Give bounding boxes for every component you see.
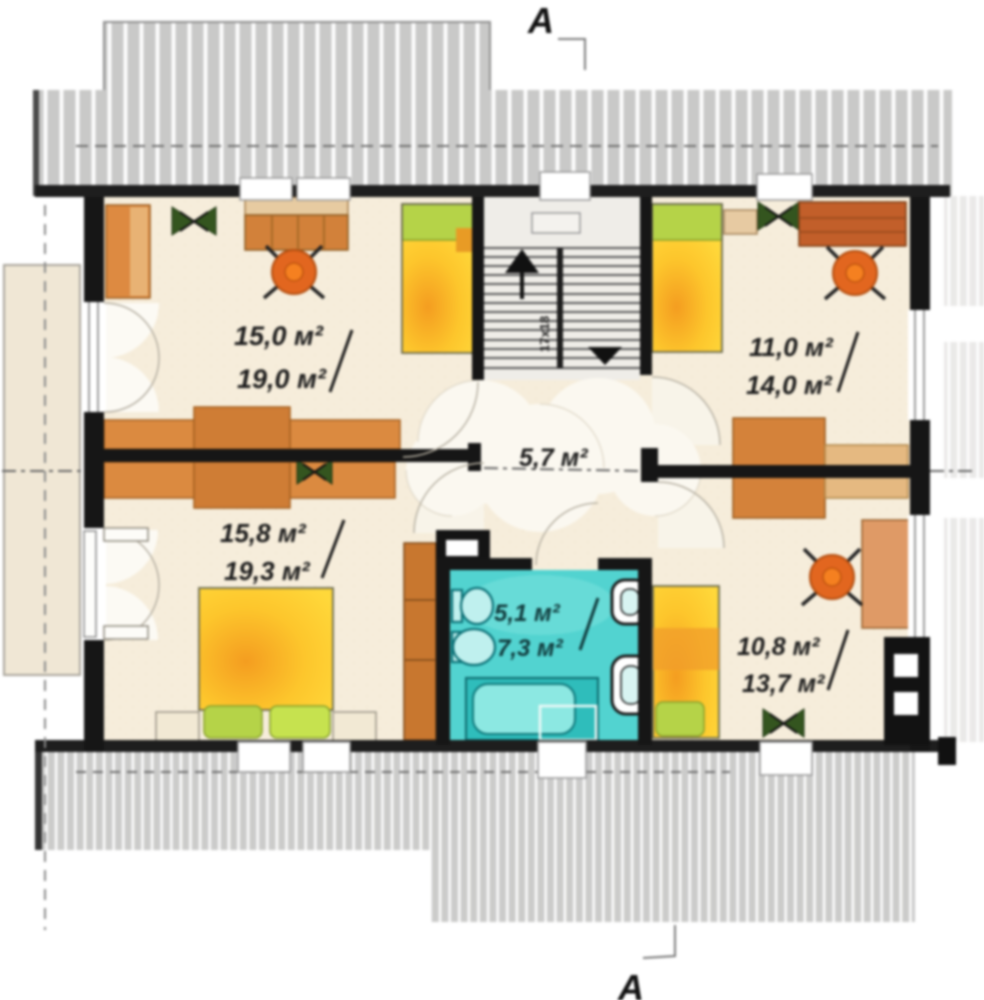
svg-text:A: A xyxy=(527,0,554,41)
svg-text:11,0 м²: 11,0 м² xyxy=(749,332,834,362)
svg-text:10,8 м²: 10,8 м² xyxy=(737,633,820,661)
svg-text:7,3 м²: 7,3 м² xyxy=(497,635,564,662)
svg-text:15,0 м²: 15,0 м² xyxy=(234,321,324,351)
svg-text:14,0 м²: 14,0 м² xyxy=(746,370,833,400)
svg-text:17x18: 17x18 xyxy=(537,316,552,352)
svg-text:15,8 м²: 15,8 м² xyxy=(220,518,307,548)
svg-text:A: A xyxy=(617,967,644,1000)
svg-text:19,3 м²: 19,3 м² xyxy=(224,556,311,586)
svg-text:5,1 м²: 5,1 м² xyxy=(494,600,561,627)
svg-text:19,0 м²: 19,0 м² xyxy=(237,364,327,394)
svg-text:13,7 м²: 13,7 м² xyxy=(742,670,825,698)
svg-text:5,7 м²: 5,7 м² xyxy=(519,444,588,472)
